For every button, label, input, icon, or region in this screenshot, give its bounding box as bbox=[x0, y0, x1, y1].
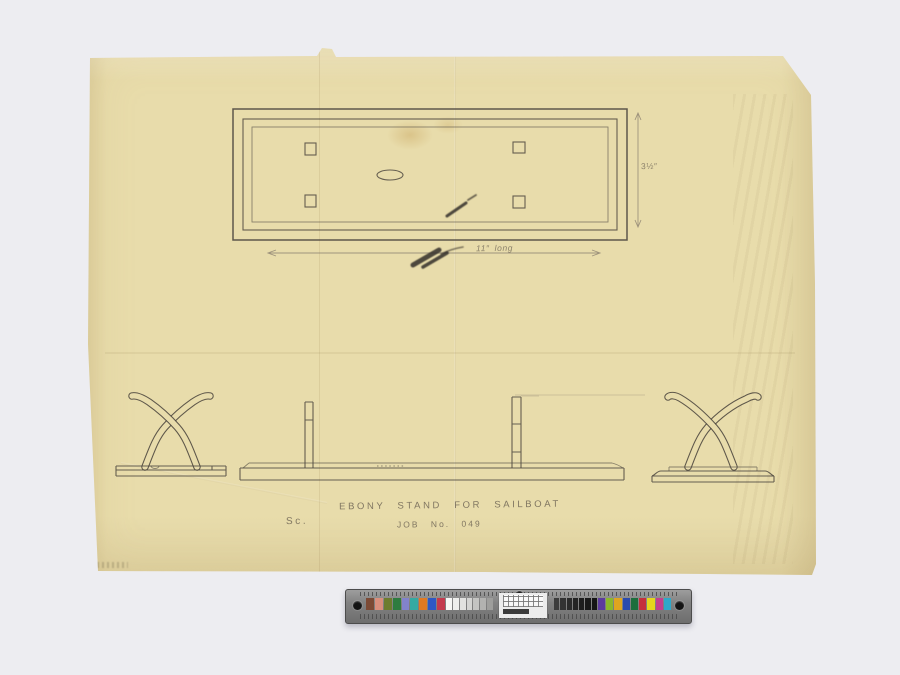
color-chip bbox=[366, 598, 374, 610]
color-chip bbox=[614, 598, 621, 610]
color-chip bbox=[410, 598, 418, 610]
color-chip bbox=[419, 598, 427, 610]
width-dimension-label: 3½″ bbox=[641, 161, 658, 171]
photo-backdrop: EBONY STAND FOR SAILBOAT Sc. JOB No. 049… bbox=[0, 0, 900, 675]
mortise-square bbox=[305, 143, 316, 155]
scale-note: Sc. bbox=[286, 516, 308, 527]
resolution-target bbox=[499, 593, 547, 618]
color-chip bbox=[446, 598, 452, 610]
bar-right-patches bbox=[598, 598, 671, 610]
mortise-square bbox=[305, 195, 316, 207]
color-chip bbox=[453, 598, 459, 610]
color-calibration-ruler bbox=[345, 589, 692, 624]
side-elevation bbox=[240, 396, 624, 480]
color-chip bbox=[437, 598, 445, 610]
color-chip bbox=[639, 598, 646, 610]
stand-post bbox=[512, 397, 521, 468]
color-chip bbox=[375, 598, 383, 610]
dimension-lines bbox=[268, 113, 641, 256]
plan-view bbox=[233, 109, 627, 240]
color-chip bbox=[631, 598, 638, 610]
color-chip bbox=[384, 598, 392, 610]
pencil-smudges bbox=[413, 195, 476, 267]
corner-stamp bbox=[92, 562, 128, 568]
job-note: JOB No. 049 bbox=[397, 518, 482, 529]
mortise-square bbox=[513, 196, 525, 208]
length-dimension-label: 11″ long bbox=[476, 243, 513, 253]
color-chip bbox=[428, 598, 436, 610]
color-chip bbox=[656, 598, 663, 610]
color-chip bbox=[487, 598, 493, 610]
mount-hole-left bbox=[353, 601, 362, 610]
color-chip bbox=[473, 598, 479, 610]
color-chip bbox=[567, 598, 572, 610]
color-chip bbox=[598, 598, 605, 610]
color-chip bbox=[664, 598, 671, 610]
end-elevation-left bbox=[116, 396, 226, 476]
color-chip bbox=[393, 598, 401, 610]
stand-post bbox=[305, 402, 313, 468]
target-bar bbox=[503, 609, 529, 614]
color-chip bbox=[560, 598, 565, 610]
bar-dark-ramp bbox=[554, 598, 597, 610]
color-chip bbox=[592, 598, 597, 610]
color-chip bbox=[623, 598, 630, 610]
mortise-square bbox=[513, 142, 525, 153]
bar-left-patches bbox=[366, 598, 445, 610]
color-chip bbox=[585, 598, 590, 610]
bar-gray-ramp bbox=[446, 598, 493, 610]
end-elevation-right bbox=[652, 396, 774, 482]
color-chip bbox=[573, 598, 578, 610]
color-chip bbox=[480, 598, 486, 610]
center-oval bbox=[377, 170, 403, 180]
color-chip bbox=[467, 598, 473, 610]
color-chip bbox=[647, 598, 654, 610]
target-grid bbox=[503, 595, 543, 607]
color-chip bbox=[579, 598, 584, 610]
color-chip bbox=[606, 598, 613, 610]
mount-hole-right bbox=[675, 601, 684, 610]
drawing-sheet: EBONY STAND FOR SAILBOAT Sc. JOB No. 049… bbox=[85, 44, 818, 580]
color-chip bbox=[554, 598, 559, 610]
color-chip bbox=[460, 598, 466, 610]
color-chip bbox=[402, 598, 410, 610]
